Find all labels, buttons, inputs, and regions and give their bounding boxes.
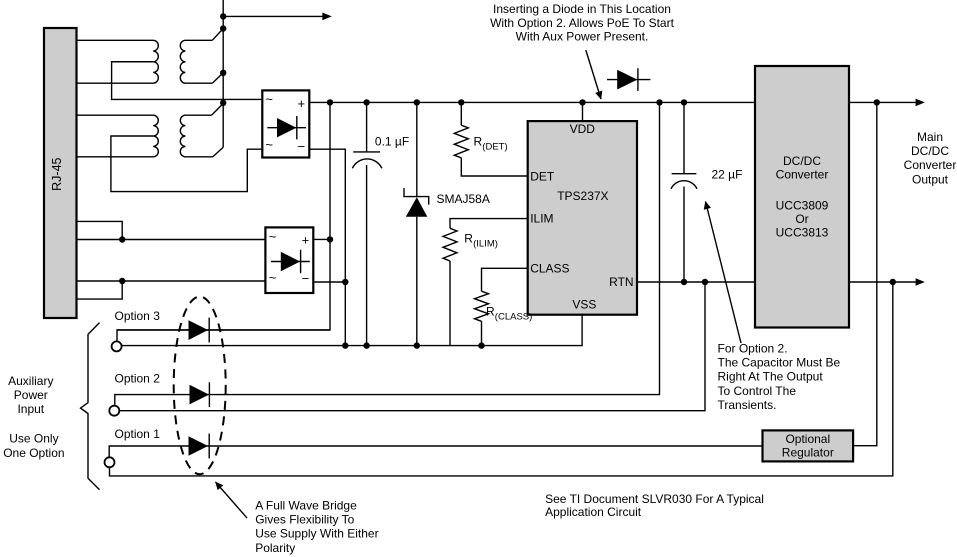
svg-text:Or: Or [795, 212, 808, 226]
svg-text:Transients.: Transients. [718, 398, 777, 412]
svg-text:With Option 2. Allows PoE To S: With Option 2. Allows PoE To Start [490, 16, 675, 30]
svg-text:22 µF: 22 µF [712, 168, 743, 182]
svg-text:0.1 µF: 0.1 µF [375, 135, 409, 149]
svg-text:+: + [298, 96, 306, 111]
svg-text:Option 2: Option 2 [115, 372, 161, 386]
svg-text:CLASS: CLASS [530, 261, 569, 275]
svg-text:RTN: RTN [609, 275, 633, 289]
svg-text:UCC3809: UCC3809 [776, 199, 829, 213]
svg-text:Inserting a Diode in This Loca: Inserting a Diode in This Location [493, 2, 671, 16]
svg-text:For Option 2.: For Option 2. [718, 342, 788, 356]
svg-text:~: ~ [265, 92, 273, 107]
svg-text:VSS: VSS [572, 297, 596, 311]
svg-text:~: ~ [269, 270, 277, 285]
svg-text:Application Circuit: Application Circuit [545, 505, 642, 519]
svg-text:With Aux Power Present.: With Aux Power Present. [516, 30, 649, 44]
svg-text:VDD: VDD [570, 122, 596, 136]
svg-text:Use Supply With Either: Use Supply With Either [255, 527, 378, 541]
svg-text:−: − [302, 271, 310, 286]
svg-text:Converter: Converter [904, 158, 957, 172]
svg-text:Auxiliary: Auxiliary [8, 374, 53, 388]
svg-text:Optional: Optional [785, 432, 830, 446]
svg-text:Power: Power [14, 388, 48, 402]
svg-text:Right At The Output: Right At The Output [718, 370, 824, 384]
svg-text:DC/DC: DC/DC [911, 144, 949, 158]
svg-text:See TI Document SLVR030 For A: See TI Document SLVR030 For A Typical [545, 492, 764, 506]
svg-text:TPS237X: TPS237X [557, 189, 608, 203]
svg-text:Gives Flexibility To: Gives Flexibility To [255, 513, 354, 527]
svg-text:DC/DC: DC/DC [783, 154, 821, 168]
svg-text:Option 1: Option 1 [115, 427, 161, 441]
svg-text:Regulator: Regulator [782, 446, 834, 460]
svg-text:R: R [486, 304, 495, 318]
svg-text:The Capacitor Must Be: The Capacitor Must Be [718, 356, 841, 370]
svg-text:R: R [474, 135, 483, 149]
svg-text:UCC3813: UCC3813 [776, 226, 829, 240]
svg-text:(DET): (DET) [482, 142, 507, 153]
svg-text:R: R [464, 232, 473, 246]
svg-text:~: ~ [269, 229, 277, 244]
svg-text:RJ-45: RJ-45 [50, 157, 64, 190]
svg-text:Converter: Converter [776, 167, 829, 181]
svg-text:One Option: One Option [3, 446, 64, 460]
svg-text:Option 3: Option 3 [115, 309, 161, 323]
svg-text:ILIM: ILIM [530, 212, 553, 226]
svg-text:Polarity: Polarity [255, 541, 295, 555]
svg-text:~: ~ [265, 137, 273, 152]
svg-text:−: − [298, 139, 306, 154]
svg-text:To Control The: To Control The [718, 384, 797, 398]
svg-text:SMAJ58A: SMAJ58A [437, 192, 490, 206]
svg-text:DET: DET [530, 170, 555, 184]
svg-text:Main: Main [917, 130, 943, 144]
svg-text:Input: Input [17, 402, 44, 416]
svg-text:Use Only: Use Only [9, 432, 58, 446]
svg-text:Output: Output [912, 172, 949, 186]
svg-text:(ILIM): (ILIM) [473, 239, 498, 250]
svg-text:A Full Wave Bridge: A Full Wave Bridge [255, 499, 357, 513]
svg-text:(CLASS): (CLASS) [495, 311, 532, 322]
svg-text:+: + [302, 233, 310, 248]
